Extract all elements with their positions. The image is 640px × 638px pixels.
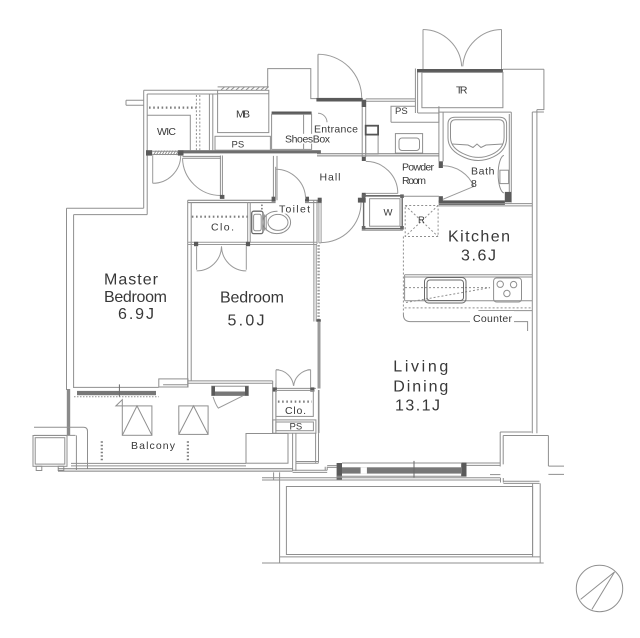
svg-text:Clo.: Clo. bbox=[285, 405, 306, 417]
svg-text:W: W bbox=[384, 208, 393, 219]
svg-text:TR: TR bbox=[456, 85, 468, 97]
svg-text:Living: Living bbox=[393, 359, 448, 376]
svg-text:ShoesBox: ShoesBox bbox=[285, 134, 331, 146]
svg-text:Bedroom: Bedroom bbox=[220, 290, 284, 307]
svg-text:Dining: Dining bbox=[393, 379, 448, 396]
svg-text:Powder: Powder bbox=[402, 162, 435, 174]
svg-text:6.9J: 6.9J bbox=[118, 306, 154, 323]
svg-text:3.6J: 3.6J bbox=[461, 248, 496, 265]
svg-text:5.0J: 5.0J bbox=[228, 313, 265, 330]
svg-text:PS: PS bbox=[232, 140, 245, 151]
svg-text:R: R bbox=[418, 215, 425, 226]
svg-text:Toilet: Toilet bbox=[279, 204, 310, 216]
svg-text:Hall: Hall bbox=[320, 172, 341, 184]
svg-text:Bath: Bath bbox=[471, 166, 495, 178]
svg-text:13.1J: 13.1J bbox=[395, 398, 440, 415]
svg-text:MB: MB bbox=[236, 109, 250, 121]
svg-text:Bedroom: Bedroom bbox=[104, 289, 167, 306]
svg-text:PS: PS bbox=[395, 106, 408, 117]
svg-text:WIC: WIC bbox=[157, 126, 176, 138]
svg-text:PS: PS bbox=[290, 422, 303, 433]
svg-text:Room: Room bbox=[402, 175, 426, 187]
svg-text:8: 8 bbox=[471, 178, 477, 190]
svg-text:Balcony: Balcony bbox=[131, 440, 176, 452]
svg-text:Counter: Counter bbox=[473, 313, 513, 325]
svg-text:Master: Master bbox=[104, 272, 159, 289]
